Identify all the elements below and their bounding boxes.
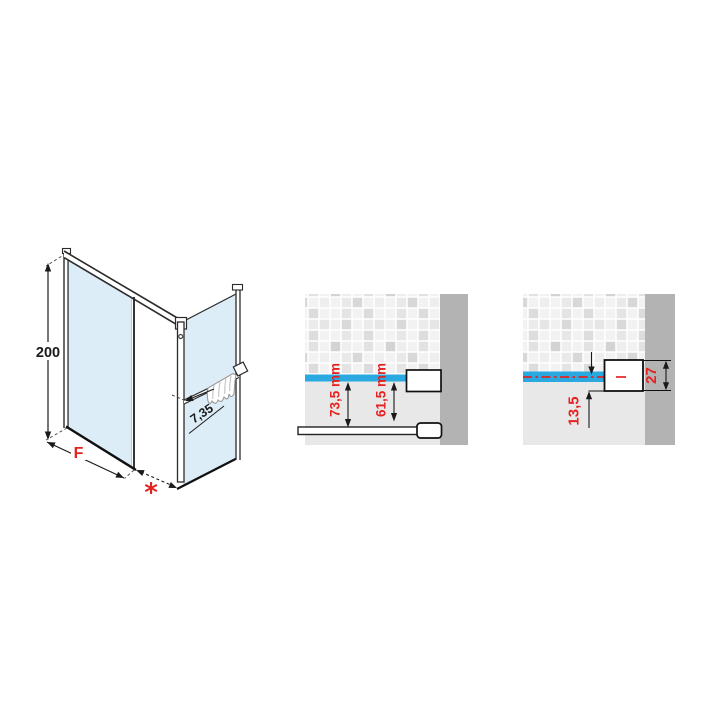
- arrowhead-up-icon: [45, 263, 51, 272]
- glass-bar: [305, 375, 407, 382]
- dimension-height-200: 200: [35, 263, 61, 440]
- arrowhead-icon: [168, 482, 177, 488]
- dim-73-5-label: 73,5 mm: [328, 363, 343, 417]
- wall-profile: [605, 360, 644, 391]
- dim-27-label: 27: [643, 367, 660, 384]
- wall-fixing-detail: 73,5 mm 61,5 mm: [300, 290, 475, 450]
- tiled-wall: [305, 294, 440, 375]
- arrowhead-down-icon: [45, 432, 51, 441]
- dimension-opening: *: [136, 470, 177, 508]
- technical-diagram-page: 200: [0, 0, 720, 720]
- opening-dimension-label: *: [144, 478, 158, 508]
- height-dimension-label: 200: [36, 345, 60, 361]
- profile-detail: 27 13,5: [520, 290, 680, 450]
- arrowhead-icon: [47, 442, 56, 448]
- width-dimension-label: F: [74, 445, 84, 462]
- wall-bracket-profile: [407, 370, 442, 392]
- arrowhead-icon: [136, 470, 145, 476]
- wall-section: [440, 294, 468, 445]
- dim-61-5-label: 61,5 mm: [374, 363, 389, 417]
- dim-13-5-label: 13,5: [566, 396, 583, 425]
- isometric-enclosure-view: 200: [20, 235, 265, 505]
- arrowhead-icon: [115, 472, 124, 478]
